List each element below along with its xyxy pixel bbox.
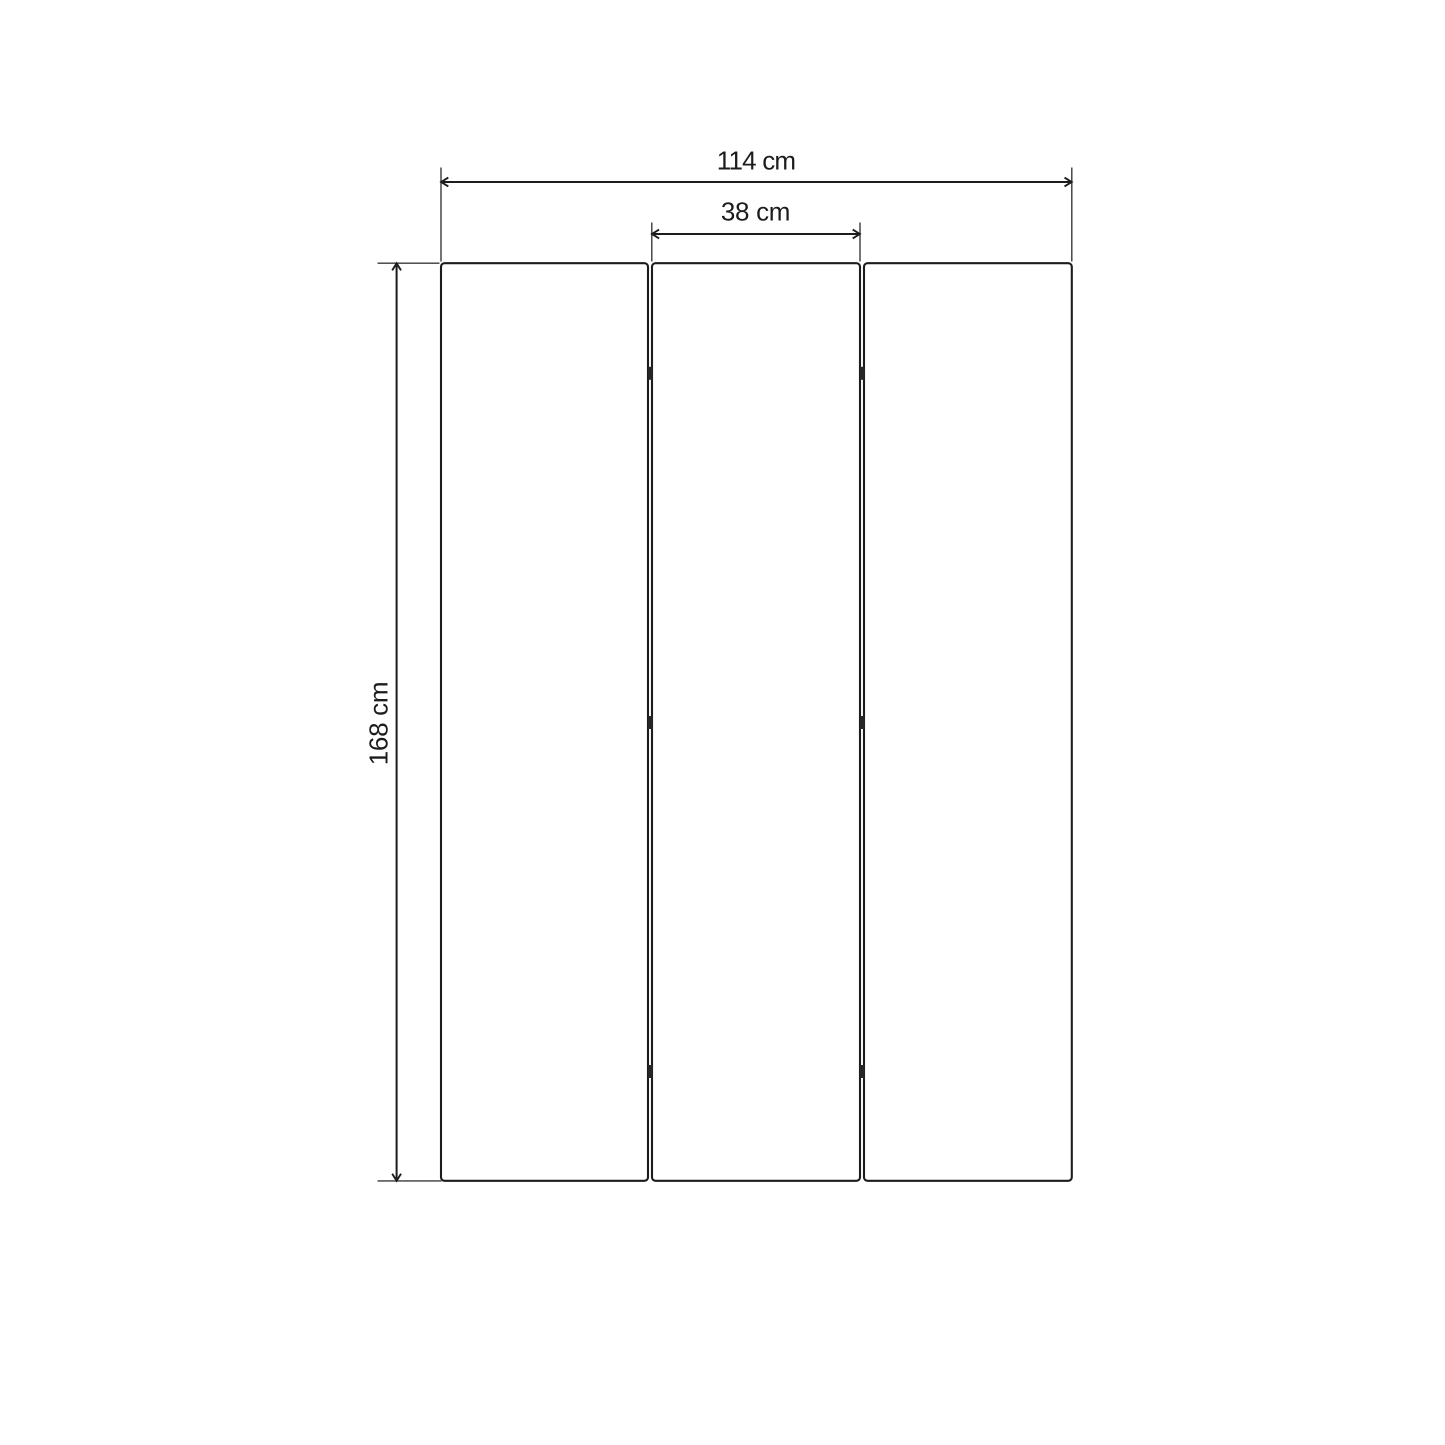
svg-text:38 cm: 38 cm xyxy=(721,197,790,227)
svg-text:168 cm: 168 cm xyxy=(364,682,394,765)
svg-text:114 cm: 114 cm xyxy=(717,146,796,176)
